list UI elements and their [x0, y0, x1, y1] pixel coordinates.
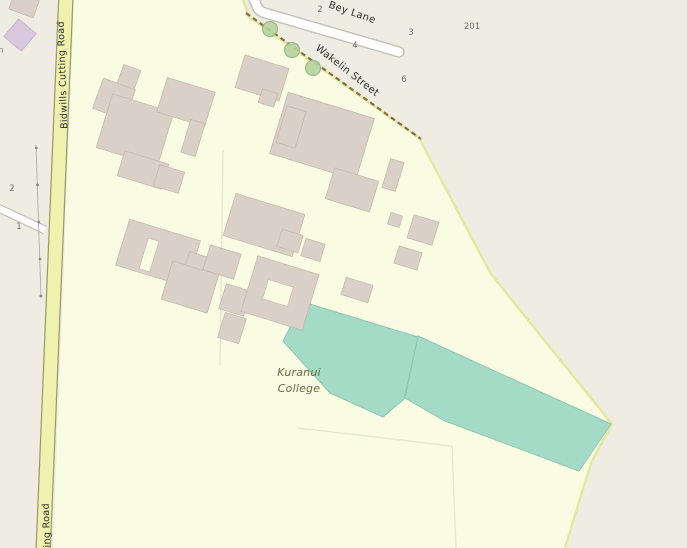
map-canvas[interactable]: Bidwills Cutting Road Bidwills Cutting R… — [0, 0, 687, 548]
map-layers — [0, 0, 687, 548]
retail-building — [4, 19, 36, 51]
